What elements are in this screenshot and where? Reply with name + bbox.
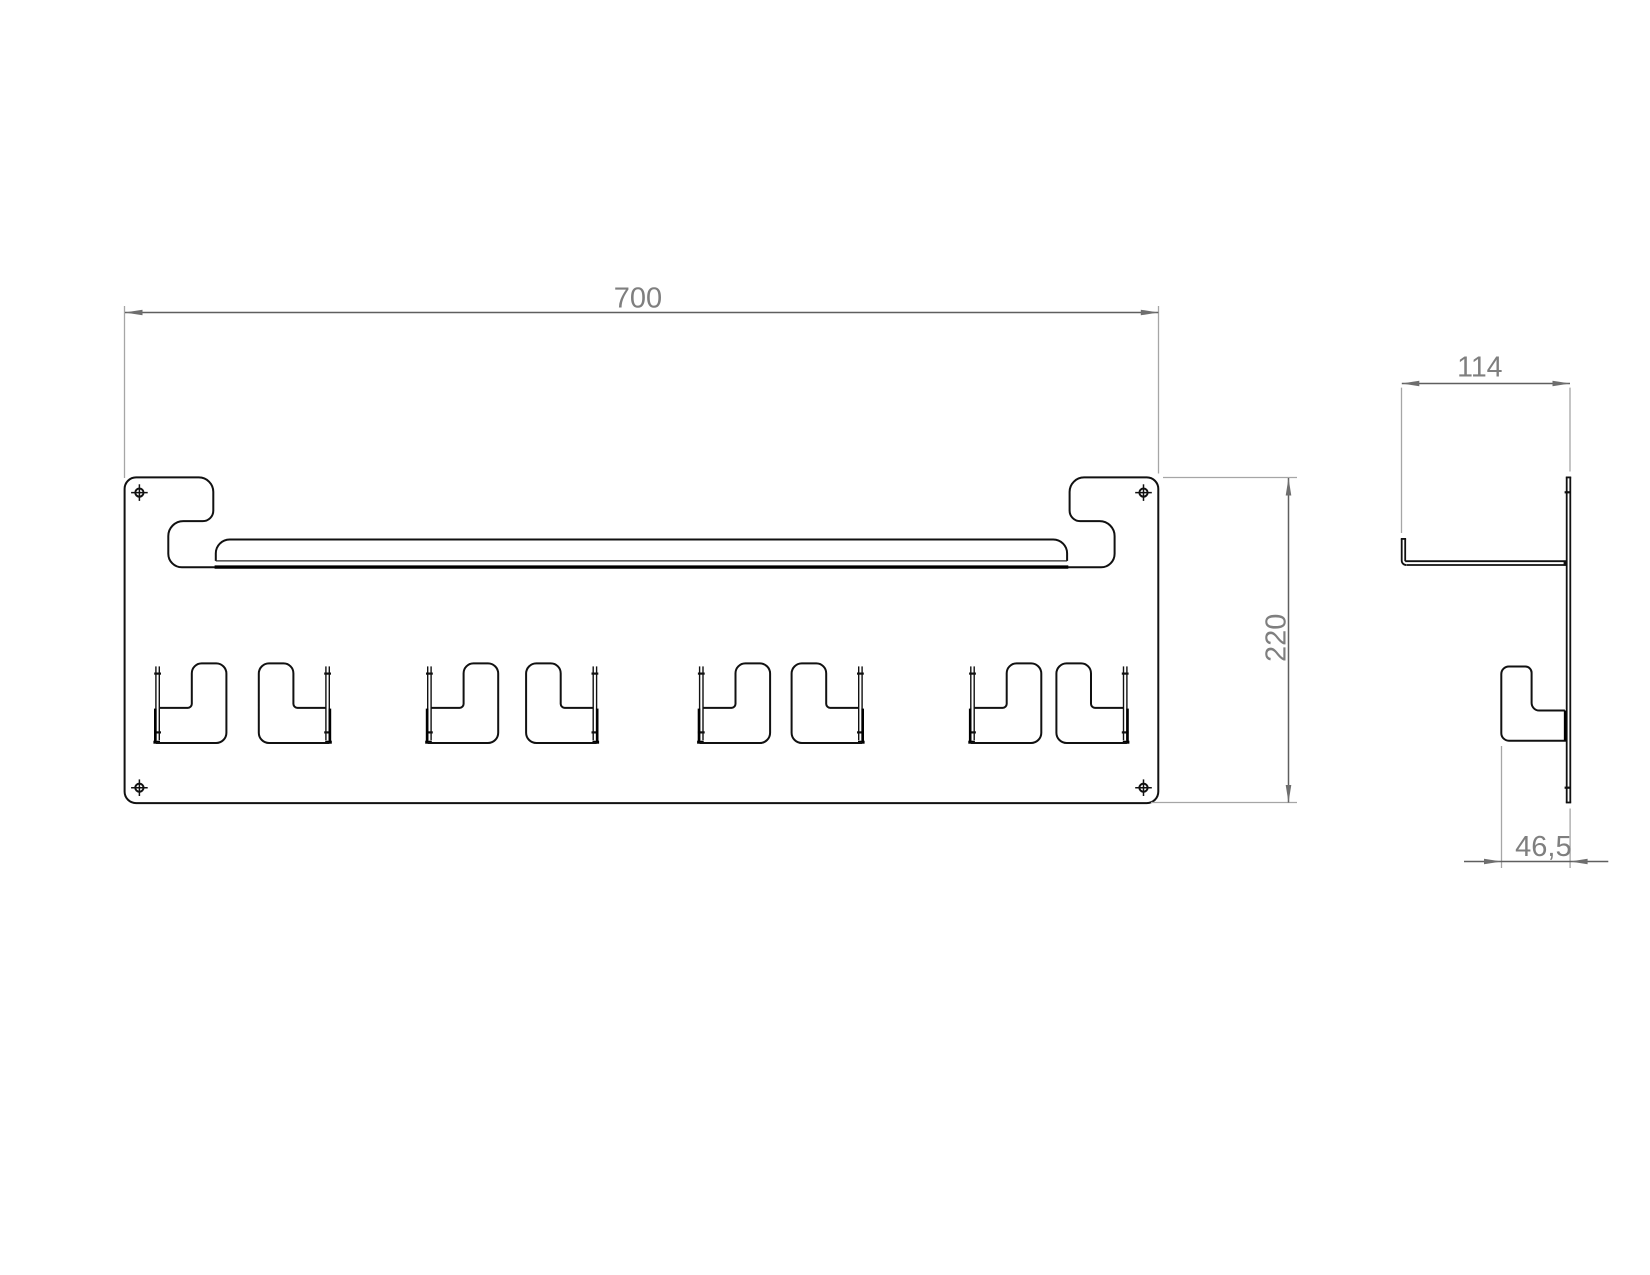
svg-text:46,5: 46,5 <box>1515 831 1571 863</box>
svg-text:114: 114 <box>1457 352 1503 384</box>
svg-text:220: 220 <box>1261 614 1293 662</box>
svg-text:700: 700 <box>614 282 662 314</box>
